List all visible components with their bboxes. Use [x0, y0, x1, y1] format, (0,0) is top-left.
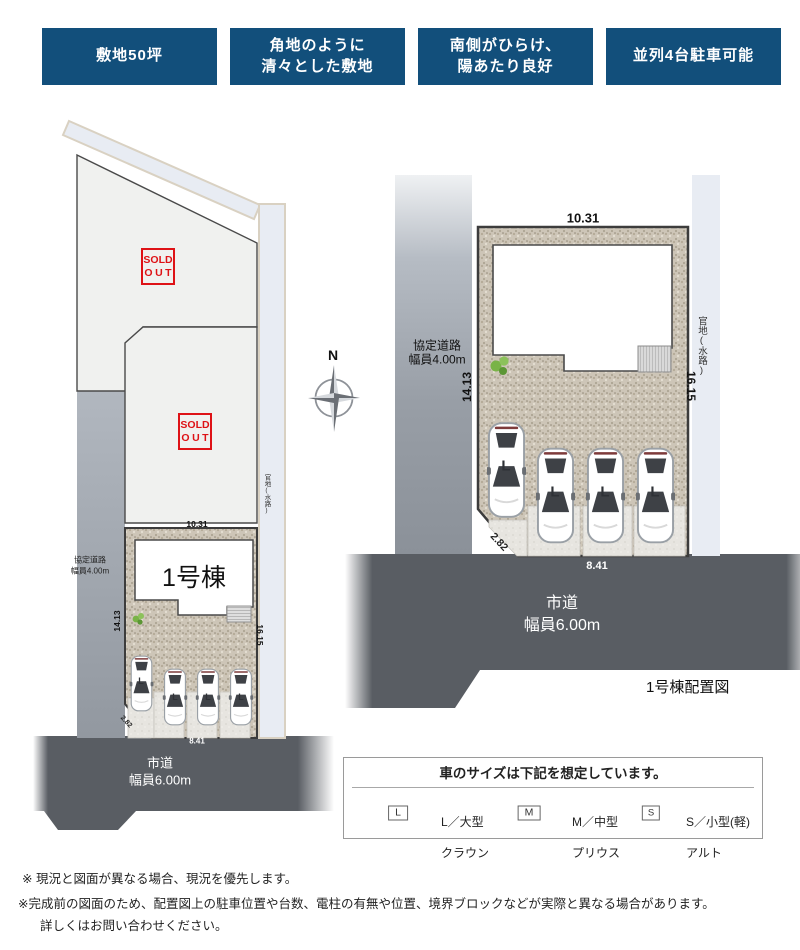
legend-item-label: S／小型(軽) アルト [686, 799, 750, 877]
legend-item-label: L／大型 クラウン [441, 799, 489, 877]
parking-spot-label: L [550, 484, 559, 501]
main-road-name: 市道 [546, 589, 578, 613]
disclaimer-note: 詳しくはお問い合わせください。 [40, 915, 228, 934]
legend-divider [352, 787, 754, 788]
dimension-bottom: 8.41 [189, 737, 205, 746]
sold-out-line1: SOLD [180, 419, 209, 431]
sold-out-stamp: SOLD OUT [178, 413, 212, 450]
feature-badge: 角地のように 清々とした敷地 [230, 28, 405, 85]
sold-out-line2: OUT [142, 267, 174, 279]
feature-badge: 並列4台駐車可能 [606, 28, 781, 85]
dimension-top: 10.31 [186, 519, 207, 529]
parking-spot-label: L [650, 484, 659, 501]
legend-model: クラウン [441, 846, 489, 862]
feature-badge: 南側がひらけ、 陽あたり良好 [418, 28, 593, 85]
disclaimer-note: ※完成前の図面のため、配置図上の駐車位置や台数、電柱の有無や位置、境界ブロックな… [18, 893, 715, 912]
main-road-width: 幅員6.00m [129, 770, 191, 789]
parking-spot-label: L [138, 676, 144, 686]
left-waterway-strip [259, 204, 285, 738]
side-road-width: 幅員4.00m [71, 566, 109, 577]
dimension-right: 16.15 [255, 624, 265, 645]
left-plan [33, 121, 334, 830]
parking-spot-label: L [172, 692, 178, 702]
legend-code-large: L [388, 806, 408, 821]
side-road-width: 幅員4.00m [408, 351, 465, 368]
legend-code-medium: M [518, 806, 541, 821]
feature-badge: 敷地50坪 [42, 28, 217, 85]
dimension-left: 14.13 [460, 372, 474, 402]
legend-size: M／中型 [572, 815, 620, 831]
plan-caption: 1号棟配置図 [646, 676, 729, 697]
left-building-deck [227, 606, 251, 622]
parking-spot-label: L [600, 484, 609, 501]
parking-spot-label: L [501, 458, 510, 475]
edge-label: 官地(水路) [694, 316, 708, 376]
site-plan-flyer: { "badges": [ {"label": "敷地50坪"}, {"labe… [0, 0, 800, 950]
legend-model: アルト [686, 846, 750, 862]
dimension-top: 10.31 [567, 211, 600, 226]
sold-out-stamp: SOLD OUT [141, 248, 175, 285]
edge-label: 官地(水路) [261, 474, 271, 514]
dimension-left: 14.13 [112, 610, 122, 631]
legend-item-label: M／中型 プリウス [572, 799, 620, 877]
legend-title: 車のサイズは下記を想定しています。 [439, 762, 666, 782]
sold-out-line1: SOLD [143, 254, 172, 266]
side-road-name: 協定道路 [74, 555, 106, 566]
parking-spot-label: L [238, 692, 244, 702]
building-label: 1号棟 [162, 558, 226, 594]
sold-out-line2: OUT [179, 432, 211, 444]
legend-size: L／大型 [441, 815, 489, 831]
parking-spot-label: L [205, 692, 211, 702]
disclaimer-note: ※ 現況と図面が異なる場合、現況を優先します。 [22, 868, 297, 887]
compass-rose [308, 365, 360, 432]
compass-north-label: N [328, 347, 338, 363]
legend-model: プリウス [572, 846, 620, 862]
feature-badges: 敷地50坪 角地のように 清々とした敷地 南側がひらけ、 陽あたり良好 並列4台… [42, 28, 781, 85]
dimension-bottom: 8.41 [586, 560, 607, 572]
legend-code-small: S [642, 806, 660, 821]
legend-size: S／小型(軽) [686, 815, 750, 831]
main-road-width: 幅員6.00m [524, 611, 600, 635]
right-building-deck [638, 346, 671, 372]
